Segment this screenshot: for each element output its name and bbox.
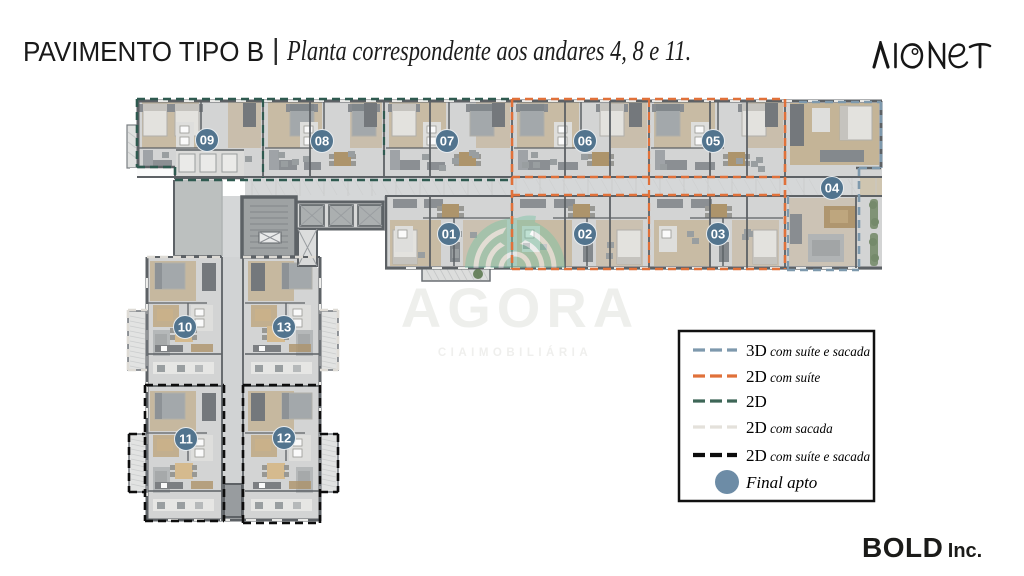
svg-text:2D com suíte e sacada: 2D com suíte e sacada: [746, 446, 870, 465]
svg-text:3D com suíte e sacada: 3D com suíte e sacada: [746, 341, 870, 360]
svg-text:2D: 2D: [746, 392, 767, 411]
svg-text:Final apto: Final apto: [745, 473, 817, 492]
svg-text:2D com sacada: 2D com sacada: [746, 418, 833, 437]
svg-text:2D com suíte: 2D com suíte: [746, 367, 820, 386]
